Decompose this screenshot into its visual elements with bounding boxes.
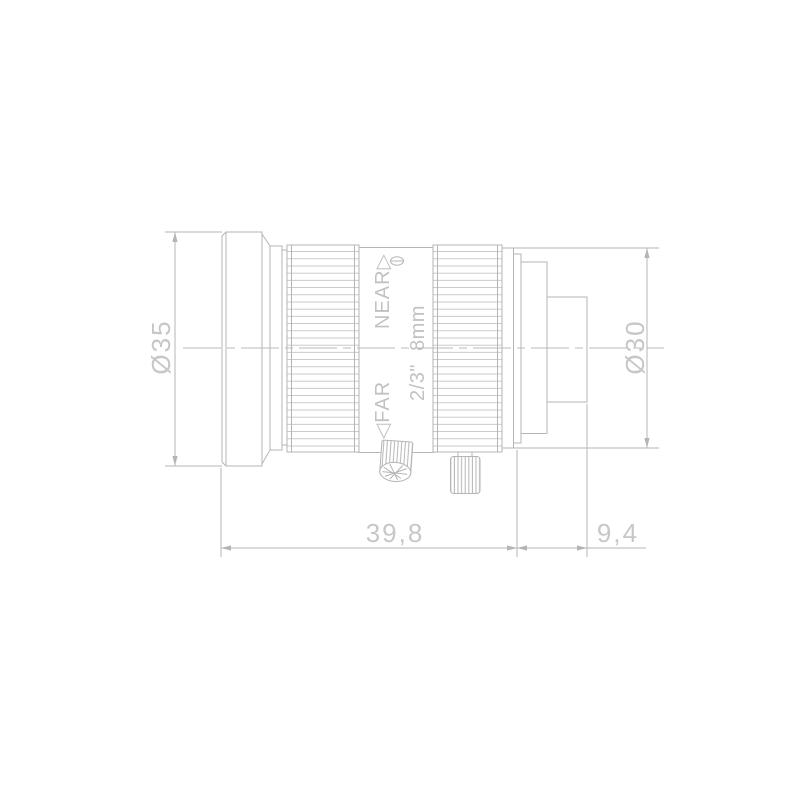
label-body-length: 39,8	[366, 518, 425, 548]
label-front-diameter: Ø35	[146, 319, 176, 374]
focus-lock-knob	[379, 440, 413, 483]
label-focus-near: NEAR▷	[372, 253, 394, 329]
lens-drawing-svg: Ø35 Ø30 39,8 9,4 NEAR▷ ◁FAR 2/3" 8mm	[0, 0, 800, 800]
lens-drawing-canvas: Ø35 Ø30 39,8 9,4 NEAR▷ ◁FAR 2/3" 8mm	[0, 0, 800, 800]
label-rear-diameter: Ø30	[620, 319, 650, 374]
dimension-front-diameter: Ø35	[146, 232, 222, 466]
iris-lock-knob	[451, 453, 481, 494]
label-format-focal: 2/3" 8mm	[407, 305, 429, 401]
front-cap-ring	[222, 232, 270, 466]
label-focus-far: ◁FAR	[372, 381, 394, 440]
label-rear-length: 9,4	[597, 518, 639, 548]
rear-cylinder	[547, 297, 587, 402]
